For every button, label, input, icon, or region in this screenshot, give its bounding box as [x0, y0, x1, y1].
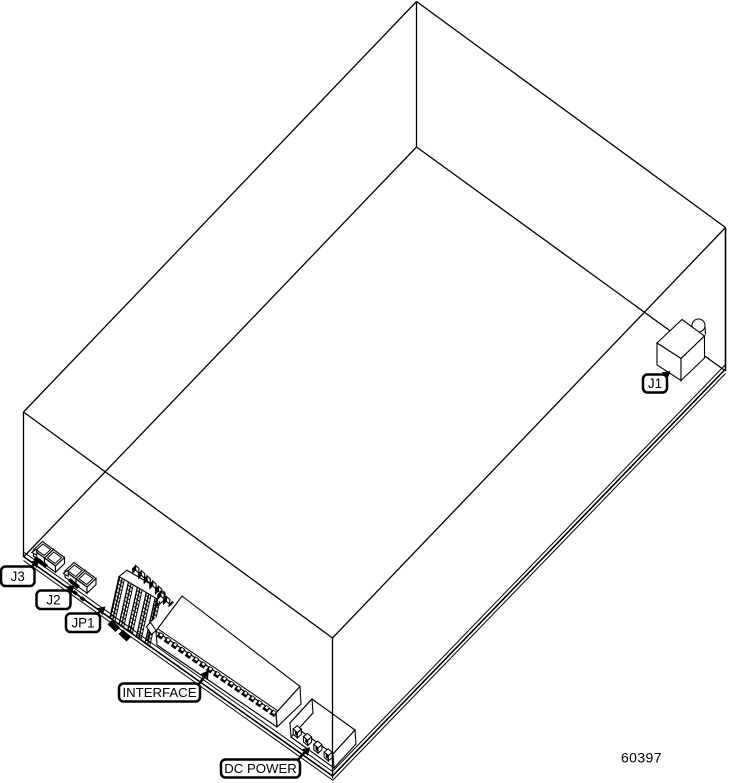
svg-text:60397: 60397	[621, 750, 662, 766]
svg-text:INTERFACE: INTERFACE	[122, 685, 196, 700]
svg-text:J2: J2	[46, 592, 60, 607]
svg-text:JP1: JP1	[71, 615, 94, 630]
svg-text:J1: J1	[648, 376, 662, 391]
svg-text:DC POWER: DC POWER	[224, 761, 297, 776]
svg-text:J3: J3	[11, 569, 25, 584]
